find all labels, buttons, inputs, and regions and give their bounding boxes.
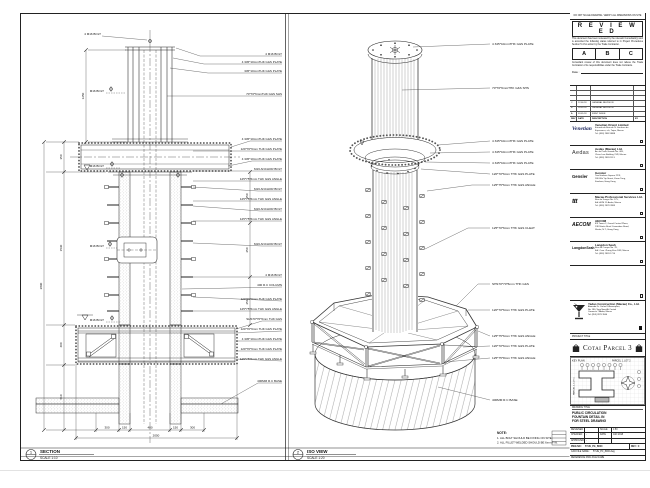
svg-text:M16 BOLT: M16 BOLT <box>90 318 104 322</box>
consultant-info: Langdon Seah Rua do Campo No. 78, Edf. C… <box>595 244 643 264</box>
svg-text:1. ALL BOLT SHOULD BE FIXING O: 1. ALL BOLT SHOULD BE FIXING ON SITE. <box>497 436 553 440</box>
title-block: DO NOT SCALE DRAWING. VERIFY ALL DIMENSI… <box>570 13 646 461</box>
consultant-address: Shatin, N.T., Hong Kong <box>595 229 643 232</box>
consultant-row-aedas: Aedas Aedas (Macau) Ltd. Av. da Praia Gr… <box>570 146 645 170</box>
svg-text:4 M16 BOLT: 4 M16 BOLT <box>84 32 101 36</box>
svg-text:2890: 2890 <box>39 282 43 289</box>
svg-text:125*75*8mm THK G&S ANGLE: 125*75*8mm THK G&S ANGLE <box>492 356 535 360</box>
section-bubble: 1 <box>30 450 33 455</box>
consultant-address: Tel: (853) 2833 1113 <box>595 157 643 160</box>
svg-text:4 M16 BOLT: 4 M16 BOLT <box>265 273 282 277</box>
svg-text:400MM R.C BASE: 400MM R.C BASE <box>492 398 518 402</box>
cad-file-label: CAD FILE NAME : <box>570 450 592 455</box>
consultant-info: AECOM 8/F Tower 2, Grand Central Plaza, … <box>595 220 643 240</box>
rev-id: A <box>570 112 577 116</box>
date-blank-line <box>581 71 643 74</box>
section-foundation <box>36 364 238 424</box>
svg-text:120*70*6mm THK G&S PLATE: 120*70*6mm THK G&S PLATE <box>492 308 535 312</box>
stamp-checkbox <box>640 260 644 264</box>
svg-text:M16 BOLT: M16 BOLT <box>90 89 104 93</box>
consultant-address: Kowloon, Hong Kong <box>595 181 643 184</box>
svg-text:120*70*6mm THK G&S PLATE: 120*70*6mm THK G&S PLATE <box>492 344 535 348</box>
svg-text:4 M16 BOLT: 4 M16 BOLT <box>265 52 282 56</box>
consultant-address: Tel: (853) 2878 2883 <box>595 205 643 208</box>
tower-icon <box>572 342 580 354</box>
status-c: C <box>620 49 642 59</box>
consultant-info: Gensler Two Harbour Square 22/F, 180 Wai… <box>595 172 643 192</box>
location-highlight <box>595 397 609 402</box>
tower-icon <box>635 342 643 354</box>
stamp-checkbox <box>640 212 644 216</box>
drawing-title-label: DRAWING TITLE <box>572 407 643 410</box>
svg-text:SHS70*70*6mm THK G&S: SHS70*70*6mm THK G&S <box>246 317 282 321</box>
cad-file-value: 5YUE_PC_8000.dwg <box>592 450 645 455</box>
date-label: DATE <box>599 433 612 438</box>
rev-by <box>634 101 645 105</box>
svg-text:125*75*6mm THK G&S ANGLE: 125*75*6mm THK G&S ANGLE <box>240 177 282 181</box>
svg-text:1530: 1530 <box>59 244 63 251</box>
svg-text:120*70*6mm THK G&S PLATE: 120*70*6mm THK G&S PLATE <box>241 297 282 301</box>
svg-text:125*75*6mm THK G&S ANGLE: 125*75*6mm THK G&S ANGLE <box>240 217 282 221</box>
rev-id: B <box>570 107 577 111</box>
svg-text:4 345*10mmTHK G&S PLATE: 4 345*10mmTHK G&S PLATE <box>492 42 534 46</box>
review-disclaimer: Consultant review of this document does … <box>572 62 643 68</box>
consultant-info: Macau Professional Services Ltd. Rua de … <box>595 196 643 216</box>
svg-text:M16 ANCHOR BOLT: M16 ANCHOR BOLT <box>254 187 282 191</box>
svg-text:125*75*6mm THK G&S ANGLE: 125*75*6mm THK G&S ANGLE <box>240 357 282 361</box>
svg-text:120*70*6mm THK G&S PLATE: 120*70*6mm THK G&S PLATE <box>241 147 282 151</box>
rev-header-date: DATE <box>577 117 591 121</box>
rev-header-id: REV <box>570 117 577 121</box>
svg-text:1250: 1250 <box>81 92 85 99</box>
svg-text:M16 BOLT: M16 BOLT <box>90 244 104 248</box>
svg-text:M16 ANCHOR BOLT: M16 ANCHOR BOLT <box>254 207 282 211</box>
page-edge-line <box>0 470 650 471</box>
iso-top-plate <box>368 41 422 59</box>
key-plan-map: KEY PLAN PARCEL 1, LOT 2 PARCEL 1, LOT 1 <box>570 357 645 405</box>
rev-value: REV : C <box>629 444 645 449</box>
contractor-row: Yadao Construction (Macau) Co., Ltd. Ala… <box>570 301 645 334</box>
svg-text:125*75*6mm THK G&S ANGLE: 125*75*6mm THK G&S ANGLE <box>492 334 535 338</box>
rev-by <box>634 112 645 116</box>
svg-text:125*70*6mm THK G&S CLEAT: 125*70*6mm THK G&S CLEAT <box>492 226 535 230</box>
consultant-list: Venetian Venetian Orient Limited Estrada… <box>570 122 645 301</box>
no-scale-note: DO NOT SCALE DRAWING. VERIFY ALL DIMENSI… <box>570 13 645 20</box>
empty-cell <box>612 439 645 444</box>
svg-text:400: 400 <box>59 342 63 347</box>
iso-title: ISO VIEW <box>307 449 328 454</box>
svg-text:125*75*6mm THK G&S ANGLE: 125*75*6mm THK G&S ANGLE <box>492 183 535 187</box>
svg-text:300: 300 <box>104 426 109 430</box>
svg-text:NOTE:: NOTE: <box>497 431 507 435</box>
key-plan-label: KEY PLAN <box>572 358 585 362</box>
general-notes: NOTE: 1. ALL BOLT SHOULD BE FIXING ON SI… <box>497 431 566 445</box>
consultant-row-blank <box>570 266 645 301</box>
section-view: 1250 2890 350 1530 400 610 250 250 250 3… <box>36 30 282 443</box>
project-title: Cotai Parcel 3 <box>570 340 645 357</box>
stamp-checkbox <box>640 164 644 168</box>
iso-scale: SCALE 1:20 <box>307 456 325 460</box>
stamp-checkbox <box>640 140 644 144</box>
consultant-row-mps: ttt Macau Professional Services Ltd. Rua… <box>570 194 645 218</box>
svg-text:125*75*6mm THK G&S ANGLE: 125*75*6mm THK G&S ANGLE <box>240 307 282 311</box>
aedas-logo: Aedas <box>572 148 595 168</box>
rev-desc: GENERAL REVISION <box>591 101 634 105</box>
date-label: Date : <box>572 70 579 74</box>
dwg-no-value: 5YUE_PG_B000 <box>584 444 629 449</box>
svg-text:125*75*6mm THK G&S ANGLE: 125*75*6mm THK G&S ANGLE <box>240 197 282 201</box>
svg-text:2. ALL FILLET WELDED SHOULD BE: 2. ALL FILLET WELDED SHOULD BE 6mm F.W. <box>497 441 558 445</box>
svg-text:400 R.C COLUMN: 400 R.C COLUMN <box>257 283 282 287</box>
stamp-checkbox <box>640 294 644 298</box>
consultant-row-langdonseah: LangdonSeah Langdon Seah Rua do Campo No… <box>570 242 645 266</box>
contractor-address: Tel: (853) 2875 3566 <box>588 314 643 317</box>
designed-label: DESIGNED <box>570 428 585 433</box>
svg-text:150: 150 <box>173 426 178 430</box>
date-value: JAN 2018 <box>612 433 645 438</box>
svg-text:610: 610 <box>59 394 63 399</box>
rev-date: 28.05.18 <box>577 107 591 111</box>
checked-label: CHECKED <box>570 433 585 438</box>
status-a: A <box>573 49 596 59</box>
rev-desc: GENERAL REVISION <box>591 107 634 111</box>
stamp-filled-square <box>639 326 643 330</box>
iso-annotations: 4 345*10mmTHK G&S PLATE 70*70*6mmTHK G&S… <box>492 42 535 402</box>
svg-text:120*70*6mm THK G&S PLATE: 120*70*6mm THK G&S PLATE <box>241 347 282 351</box>
parcel-top-label: PARCEL 1, LOT 2 <box>612 359 631 362</box>
svg-text:345*10mmTHK G&S PLATE: 345*10mmTHK G&S PLATE <box>244 69 282 73</box>
empty-cell <box>599 439 612 444</box>
revision-table-header: REV DATE DESCRIPTION BY <box>570 117 645 121</box>
rev-header-desc: DESCRIPTION <box>591 117 634 121</box>
scale-value: 1:50 <box>612 428 645 433</box>
drawing-sheet: 1250 2890 350 1530 400 610 250 250 250 3… <box>0 0 650 488</box>
gensler-logo: Gensler <box>572 172 595 192</box>
venetian-logo: Venetian <box>572 124 595 144</box>
svg-text:M16 ANCHOR BOLT: M16 ANCHOR BOLT <box>254 242 282 246</box>
stamp-checkbox <box>640 236 644 240</box>
svg-text:4 345*10mmTHK G&S PLATE: 4 345*10mmTHK G&S PLATE <box>492 150 534 154</box>
contractor-martini-logo <box>572 303 586 321</box>
iso-column <box>368 54 422 333</box>
svg-text:4 345*10mmTHK G&S PLATE: 4 345*10mmTHK G&S PLATE <box>492 139 534 143</box>
consultant-row-gensler: Gensler Gensler Two Harbour Square 22/F,… <box>570 170 645 194</box>
svg-text:400: 400 <box>147 426 152 430</box>
svg-text:4 345*10mmTHK G&S PLATE: 4 345*10mmTHK G&S PLATE <box>492 161 534 165</box>
view-titles: 1 SECTION SCALE 1:10 2 ISO VIEW SCALE 1:… <box>26 449 356 460</box>
designed-value <box>585 428 599 433</box>
consultant-row-venetian: Venetian Venetian Orient Limited Estrada… <box>570 122 645 146</box>
review-date-row: Date : <box>572 70 643 74</box>
project-name: Cotai Parcel 3 <box>583 344 632 352</box>
svg-text:300: 300 <box>190 426 195 430</box>
ref-dwg-row: REFERENCE DWG FILE NAME <box>570 456 645 462</box>
section-title: SECTION <box>40 449 60 454</box>
consultant-info: Aedas (Macau) Ltd. Av. da Praia Grande N… <box>595 148 643 168</box>
svg-text:400MM R.C BASE: 400MM R.C BASE <box>257 379 282 383</box>
consultant-address: Tel: (853) 2833 1710 <box>595 253 643 256</box>
cad-canvas: 1250 2890 350 1530 400 610 250 250 250 3… <box>0 0 650 488</box>
iso-view: 4 345*10mmTHK G&S PLATE 70*70*6mmTHK G&S… <box>310 41 535 430</box>
drawing-fields: DESIGNED SCALE 1:50 CHECKED - DATE JAN 2… <box>570 428 645 462</box>
svg-text:4 345*10mmTHK G&S PLATE: 4 345*10mmTHK G&S PLATE <box>242 157 282 161</box>
consultant-info: Venetian Orient Limited Estrada da Baia … <box>595 124 643 144</box>
section-annotations: 4 M16 BOLT 4 345*10mmTHK G&S PLATE 345*1… <box>84 32 282 383</box>
rev-by <box>634 107 645 111</box>
svg-text:2050: 2050 <box>153 434 160 438</box>
svg-text:70*70*6mmTHK G&S SHS: 70*70*6mmTHK G&S SHS <box>246 92 282 96</box>
review-stamp-text: This document has been reviewed by the r… <box>572 38 643 47</box>
svg-text:70*70*6mmTHK G&S SHS: 70*70*6mmTHK G&S SHS <box>492 86 529 90</box>
ref-dwg-label: REFERENCE DWG FILE NAME <box>570 456 645 461</box>
approved-value: - <box>585 439 599 444</box>
dwg-no-label: DWG NO : <box>570 444 584 449</box>
review-stamp-title: R E V I E W E D <box>572 21 643 37</box>
review-stamp: R E V I E W E D This document has been r… <box>570 20 645 86</box>
rev-id: C <box>570 101 577 105</box>
review-status-row: A B C <box>572 48 643 60</box>
rev-desc: FIRST ISSUE <box>591 112 634 116</box>
svg-text:250: 250 <box>245 247 249 252</box>
drawing-title-line: FOR STEEL DRAWING <box>572 419 643 423</box>
svg-text:150: 150 <box>122 426 127 430</box>
status-b: B <box>596 49 619 59</box>
rev-header-by: BY <box>634 117 645 121</box>
approved-label: APPROVED <box>570 439 585 444</box>
consultant-address: Tel: (853) 2882 8888 <box>595 133 643 136</box>
svg-text:M16 ANCHOR BOLT: M16 ANCHOR BOLT <box>254 167 282 171</box>
langdonseah-logo: LangdonSeah <box>572 244 595 264</box>
svg-text:SHS70*70*6mm THK G&S: SHS70*70*6mm THK G&S <box>492 282 529 286</box>
svg-text:120*70*6mm THK G&S PLATE: 120*70*6mm THK G&S PLATE <box>492 172 535 176</box>
mps-logo: ttt <box>572 196 595 216</box>
revision-table: C 12.06.18 GENERAL REVISION B 28.05.18 G… <box>570 86 645 122</box>
drawing-title-box: DRAWING TITLE PUBLIC CIRCULATION FOUNTAI… <box>570 406 645 428</box>
rev-date: 03.05.18 <box>577 112 591 116</box>
contractor-info: Yadao Construction (Macau) Co., Ltd. Ala… <box>586 303 643 331</box>
iso-bubble: 2 <box>297 450 300 455</box>
key-plan: KEY PLAN PARCEL 1, LOT 2 PARCEL 1, LOT 1 <box>570 357 645 406</box>
section-base-box <box>76 315 237 364</box>
rev-date: 12.06.18 <box>577 101 591 105</box>
svg-text:350: 350 <box>59 154 63 159</box>
svg-text:4 345*10mmTHK G&S PLATE: 4 345*10mmTHK G&S PLATE <box>242 337 282 341</box>
svg-text:4 345*10mmTHK G&S PLATE: 4 345*10mmTHK G&S PLATE <box>242 137 282 141</box>
section-scale: SCALE 1:10 <box>40 456 58 460</box>
svg-text:120*70*6mm THK G&S PLATE: 120*70*6mm THK G&S PLATE <box>241 327 282 331</box>
parcel-left-label: PARCEL 1, LOT 1 <box>573 376 576 394</box>
stamp-checkbox <box>640 188 644 192</box>
aecom-logo: AECOM <box>572 220 595 240</box>
checked-value: - <box>585 433 599 438</box>
svg-text:M16 BOLT: M16 BOLT <box>90 164 104 168</box>
svg-text:4 345*10mmTHK G&S PLATE: 4 345*10mmTHK G&S PLATE <box>242 60 282 64</box>
consultant-row-aecom: AECOM AECOM 8/F Tower 2, Grand Central P… <box>570 218 645 242</box>
scale-label: SCALE <box>599 428 612 433</box>
